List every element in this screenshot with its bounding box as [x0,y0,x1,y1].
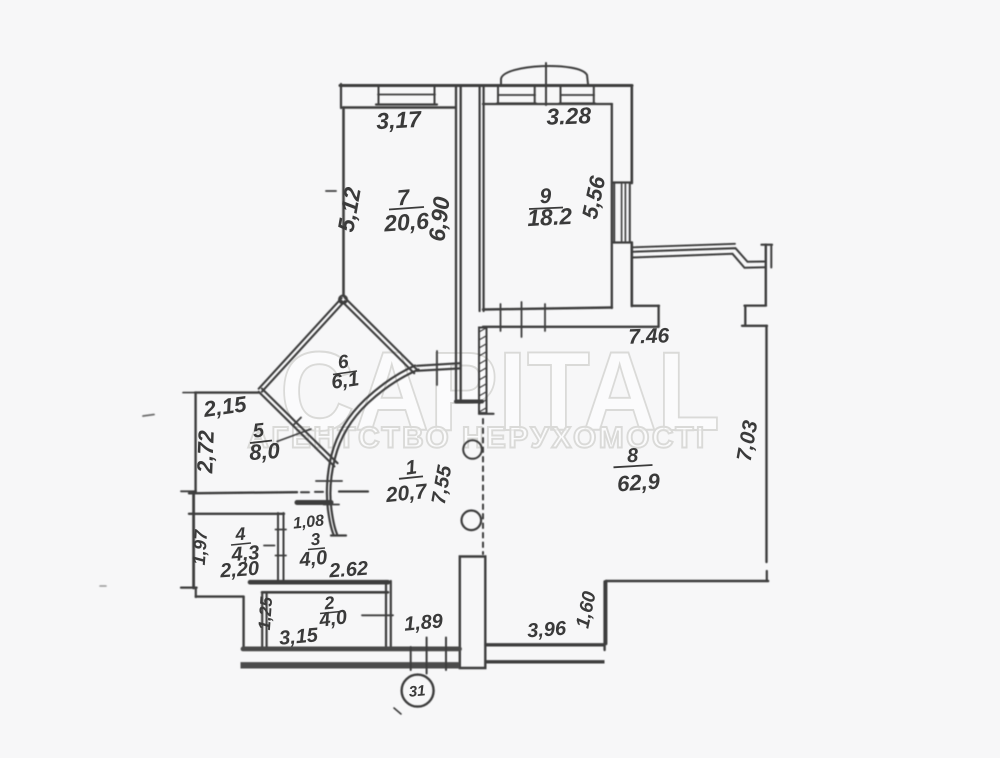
svg-text:3.28: 3.28 [546,102,592,130]
svg-text:7.46: 7.46 [628,324,670,348]
svg-text:20,7: 20,7 [384,480,429,507]
svg-text:3,17: 3,17 [376,106,423,134]
svg-text:1,08: 1,08 [292,512,325,532]
svg-text:31: 31 [408,682,426,700]
svg-text:4: 4 [234,524,247,545]
svg-text:20,6: 20,6 [382,207,430,236]
svg-text:4,0: 4,0 [297,547,328,572]
svg-text:2.62: 2.62 [327,558,368,583]
svg-text:2,20: 2,20 [218,558,259,583]
svg-text:1,89: 1,89 [403,610,445,635]
svg-text:4,0: 4,0 [317,606,349,632]
svg-text:2,72: 2,72 [192,429,219,474]
svg-text:62,9: 62,9 [616,469,661,497]
svg-text:1,97: 1,97 [189,528,211,565]
svg-text:18.2: 18.2 [527,203,573,231]
svg-text:3,96: 3,96 [526,618,567,643]
svg-text:6,90: 6,90 [423,195,454,243]
svg-text:1,25: 1,25 [255,596,276,631]
svg-text:3,15: 3,15 [278,624,320,649]
